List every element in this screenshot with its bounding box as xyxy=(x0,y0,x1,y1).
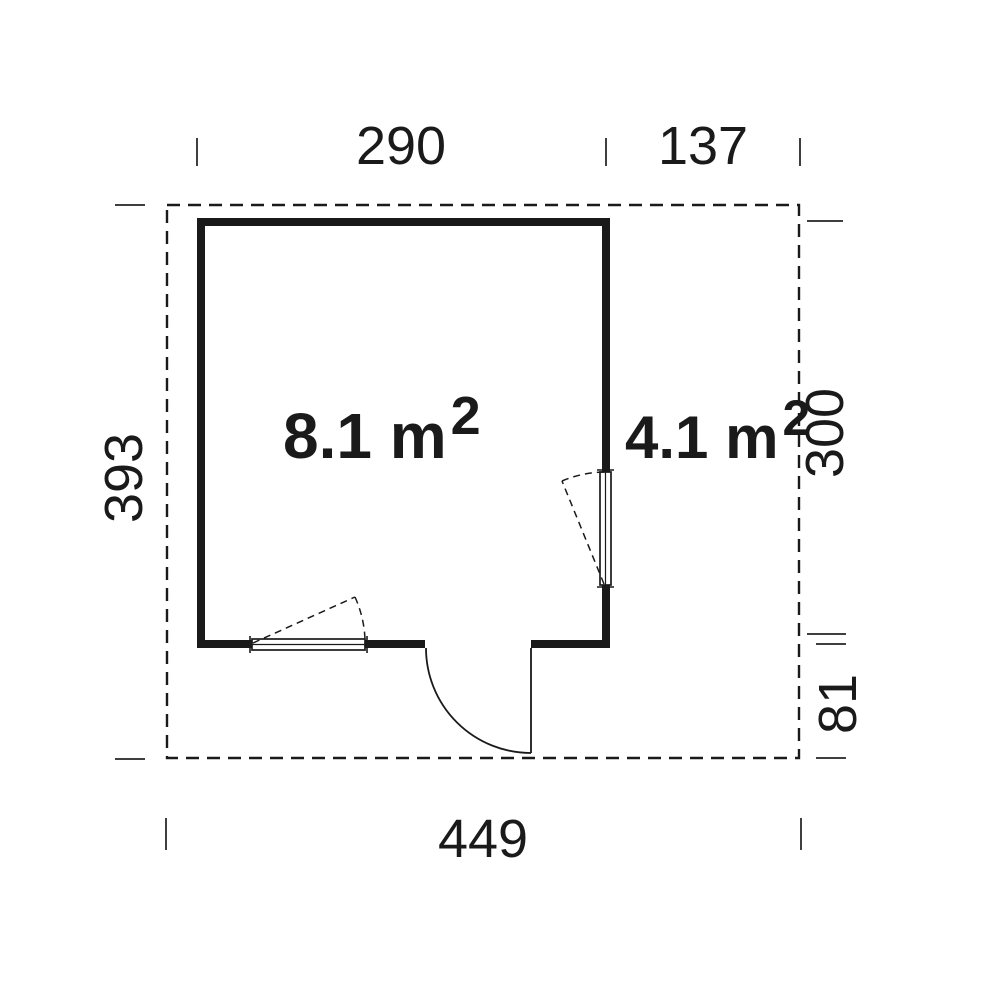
floor-plan-canvas: 290 137 449 393 300 81 8.1 m2 4.1 m2 xyxy=(0,0,1000,1000)
wall-bottom-left-segment xyxy=(197,640,252,648)
wall-right-lower xyxy=(602,585,610,648)
window-swing-line xyxy=(253,597,355,643)
wall-left xyxy=(197,218,205,648)
side-door-swing-arc xyxy=(562,472,605,481)
dim-label-bottom-total: 449 xyxy=(438,809,528,869)
room-area-side: 4.1 m2 xyxy=(625,390,810,471)
dim-label-right-lower: 81 xyxy=(808,674,868,734)
roof-outline-dashed xyxy=(167,205,799,758)
dim-label-top-side: 137 xyxy=(658,116,748,176)
dim-label-top-main: 290 xyxy=(356,116,446,176)
wall-right-upper xyxy=(602,218,610,472)
room-area-main: 8.1 m2 xyxy=(283,386,481,472)
wall-bottom-right-segment xyxy=(531,640,610,648)
side-door-swing-line xyxy=(562,481,604,584)
room-area-main-value: 8.1 m xyxy=(283,400,447,472)
window-swing-arc xyxy=(355,597,365,640)
room-area-side-value: 4.1 m xyxy=(625,404,778,471)
floor-plan-drawing: 290 137 449 393 300 81 8.1 m2 4.1 m2 xyxy=(0,0,1000,1000)
entrance-door-swing-arc xyxy=(426,648,531,753)
room-area-side-sup: 2 xyxy=(782,390,810,446)
dim-label-left-total: 393 xyxy=(94,433,154,523)
wall-top xyxy=(197,218,610,226)
wall-bottom-middle-segment xyxy=(365,640,425,648)
room-area-main-sup: 2 xyxy=(451,386,481,446)
